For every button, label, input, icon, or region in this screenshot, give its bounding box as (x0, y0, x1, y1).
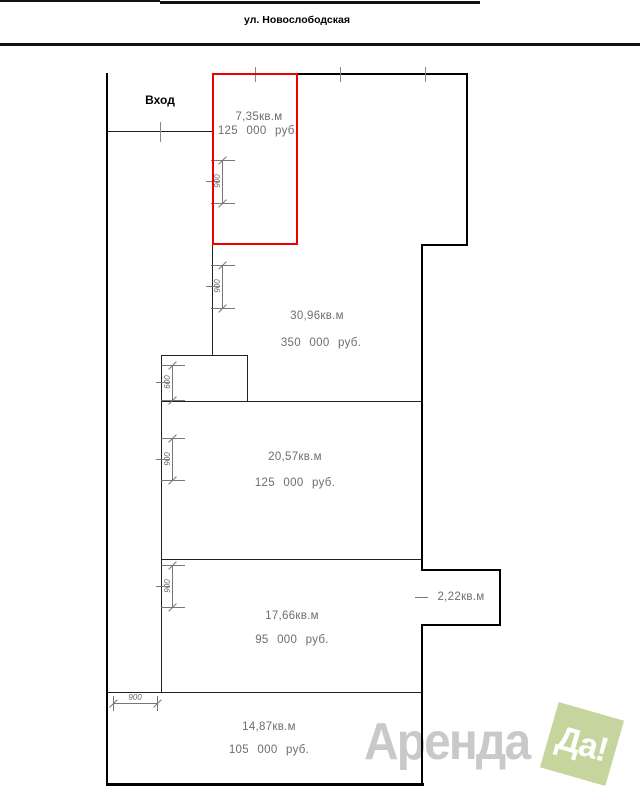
wall-bay-top (421, 569, 501, 571)
watermark-badge-text: Да! (552, 718, 612, 770)
tick-top-wall-2 (340, 67, 341, 82)
street-line-bottom (0, 43, 640, 46)
unit-price-14-87: 105 000 руб. (199, 744, 339, 756)
wall-bottom (106, 783, 424, 786)
wall-bay-bottom (421, 624, 501, 626)
street-line-top-left (0, 0, 160, 2)
wall-top (296, 73, 468, 75)
wall-right-mid (421, 245, 423, 571)
unit-area-2-22: 2,22кв.м (426, 591, 496, 603)
street-name: ул. Новослободская (197, 14, 397, 26)
line-vert-left (161, 355, 162, 693)
tick-top-wall-3 (425, 67, 426, 82)
unit-price-20-57: 125 000 руб. (225, 477, 365, 489)
wall-bay-right (499, 569, 501, 626)
entrance-label: Вход (130, 93, 190, 107)
unit-area-30-96: 30,96кв.м (247, 310, 387, 322)
line-horiz-2 (161, 559, 422, 560)
wall-left (106, 73, 108, 786)
tick-bay-wall (415, 597, 428, 598)
unit-area-20-57: 20,57кв.м (225, 451, 365, 463)
wall-right-lower (421, 626, 423, 786)
floor-plan: ул. Новослободская Аренда Да! 900 (0, 0, 640, 800)
street-line-top-right (160, 1, 480, 4)
wall-right-top (466, 74, 468, 246)
watermark-brand: Аренда (364, 712, 529, 772)
wall-right-step (421, 244, 468, 246)
highlighted-unit-outline[interactable] (212, 73, 298, 245)
unit-area-14-87: 14,87кв.м (199, 721, 339, 733)
watermark-badge: Да! (540, 702, 624, 786)
unit-area-17-66: 17,66кв.м (222, 610, 362, 622)
line-closet-right (247, 356, 248, 402)
line-closet-top (161, 355, 248, 356)
tick-entrance (160, 122, 161, 142)
line-horiz-1 (161, 401, 422, 402)
unit-price-30-96: 350 000 руб. (251, 337, 391, 349)
unit-price-17-66: 95 000 руб. (222, 634, 362, 646)
